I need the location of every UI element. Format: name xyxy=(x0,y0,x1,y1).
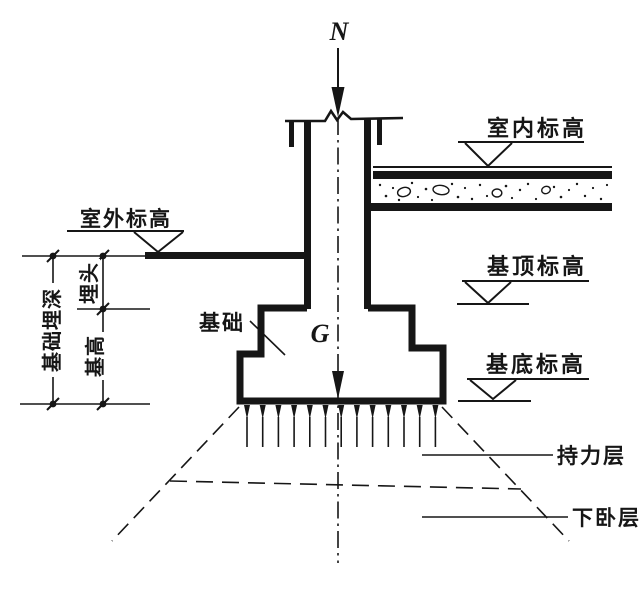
foundation-height-label: 基高 xyxy=(83,335,107,377)
embedment-depth-label: 基础埋深 xyxy=(40,288,64,372)
pressure-arrow-icon xyxy=(323,405,329,447)
pressure-arrow-icon xyxy=(385,405,391,447)
underlying-layer-label: 下卧层 xyxy=(572,506,640,530)
pressure-arrow-icon xyxy=(307,405,313,447)
wall-break-line xyxy=(285,111,403,121)
self-weight-group: G xyxy=(311,319,344,399)
slab-top-band xyxy=(373,171,612,179)
soil-pressure-arrows xyxy=(244,405,438,447)
pressure-arrow-icon xyxy=(260,405,266,447)
floor-slab-group xyxy=(371,167,612,211)
pressure-arrow-icon xyxy=(338,405,344,447)
pressure-arrow-icon xyxy=(275,405,281,447)
soil-strata-group: 持力层 下卧层 xyxy=(112,407,640,541)
weight-arrow-head-icon xyxy=(332,371,344,399)
foundation-top-level-marker: 基顶标高 xyxy=(457,254,589,304)
cover-depth-label: 埋头 xyxy=(77,262,101,304)
level-triangle-icon xyxy=(465,143,512,166)
pressure-arrow-icon xyxy=(401,405,407,447)
load-spread-line-left xyxy=(112,407,239,541)
wall-left-face xyxy=(304,120,311,309)
stratum-boundary-dashed-line xyxy=(170,481,521,489)
foundation-label: 基础 xyxy=(199,311,245,335)
level-triangle-icon xyxy=(470,380,516,399)
pressure-arrow-icon xyxy=(244,405,250,447)
wall-right-face xyxy=(364,118,371,309)
wall-break-stub-right xyxy=(377,118,382,145)
outdoor-level-label: 室外标高 xyxy=(80,207,172,231)
outdoor-level-marker: 室外标高 xyxy=(67,207,184,252)
slab-concrete-texture xyxy=(379,182,608,201)
pressure-arrow-icon xyxy=(417,405,423,447)
foundation-callout: 基础 xyxy=(199,311,285,355)
bearing-layer-label: 持力层 xyxy=(557,444,626,468)
load-spread-line-right xyxy=(442,407,569,541)
weight-g-label: G xyxy=(311,319,330,348)
foundation-outline xyxy=(240,308,443,401)
foundation-diagram-page: N xyxy=(0,0,640,598)
wall-break-stub-left xyxy=(289,121,294,147)
foundation-section-drawing: N xyxy=(0,0,640,598)
outdoor-ground-line xyxy=(145,252,311,259)
axial-load-group: N xyxy=(329,17,350,117)
foundation-bottom-level-label: 基底标高 xyxy=(486,352,586,378)
foundation-leader-line xyxy=(250,321,285,355)
pressure-arrow-icon xyxy=(432,405,438,447)
foundation-top-level-label: 基顶标高 xyxy=(487,254,587,280)
foundation-bottom-level-marker: 基底标高 xyxy=(458,352,589,401)
indoor-level-marker: 室内标高 xyxy=(458,116,587,166)
dimension-group: 基础埋深 埋头 基高 xyxy=(20,250,150,410)
pressure-arrow-icon xyxy=(354,405,360,447)
level-triangle-icon xyxy=(465,282,511,303)
slab-bottom-band xyxy=(371,203,612,211)
load-n-label: N xyxy=(329,17,350,46)
pressure-arrow-icon xyxy=(370,405,376,447)
indoor-level-label: 室内标高 xyxy=(487,116,587,142)
level-triangle-icon xyxy=(134,232,183,252)
pressure-arrow-icon xyxy=(291,405,297,447)
